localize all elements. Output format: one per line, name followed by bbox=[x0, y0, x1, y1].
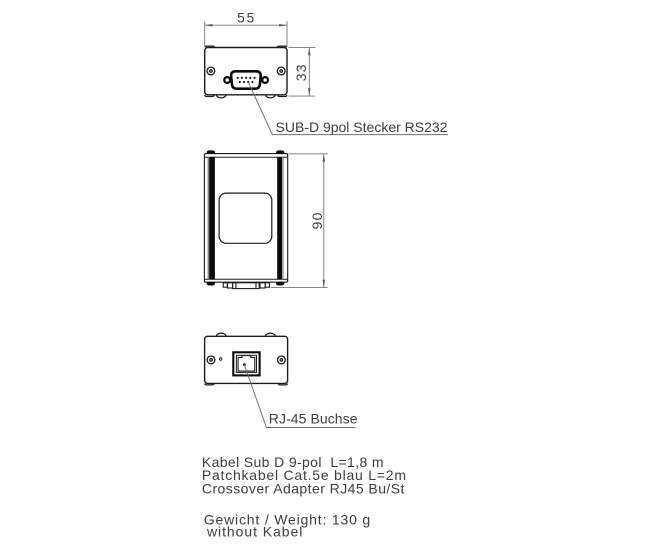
svg-text:SUB-D 9pol Stecker RS232: SUB-D 9pol Stecker RS232 bbox=[276, 119, 448, 135]
svg-text:90: 90 bbox=[309, 211, 325, 229]
svg-text:Crossover Adapter RJ45 Bu/St: Crossover Adapter RJ45 Bu/St bbox=[202, 480, 405, 496]
svg-text:without Kabel: without Kabel bbox=[206, 524, 303, 540]
svg-text:RJ-45 Buchse: RJ-45 Buchse bbox=[269, 411, 358, 427]
svg-text:33: 33 bbox=[293, 63, 309, 81]
svg-text:55: 55 bbox=[237, 10, 256, 25]
